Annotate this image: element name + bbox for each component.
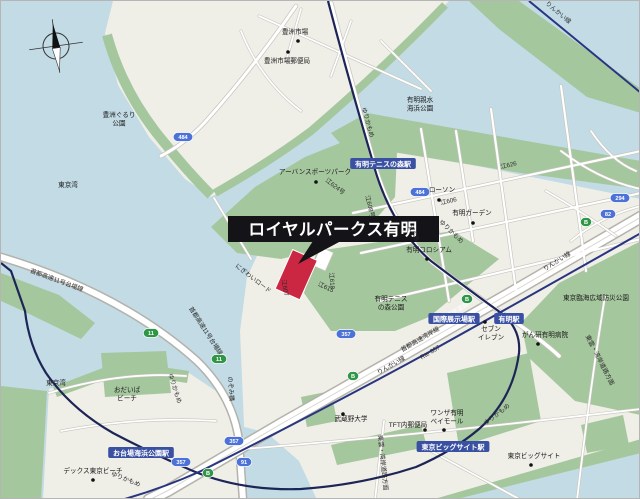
poi-label: TFT内郵便局 (389, 420, 428, 429)
poi-label: がん研有明病院 (522, 330, 569, 339)
poi-dot (425, 257, 429, 261)
poi-dot (483, 320, 487, 324)
route-badge-text: 91 (241, 460, 247, 466)
route-badge-text: 484 (178, 135, 188, 141)
poi-label: ローソン (429, 187, 456, 194)
poi-label: 有明コロシアム (406, 245, 452, 254)
poi-label: セブンイレブン (478, 324, 505, 342)
route-badge-text: 11 (148, 331, 154, 337)
poi-dot (341, 412, 345, 416)
poi-label: 東京湾 (58, 180, 78, 189)
ariake-access-map: ロイヤルパークス有明 ゆりかもめゆりかもめゆりかもめゆりかもめゆりかもめ首都高速… (0, 0, 640, 499)
route-badge-text: 11 (216, 357, 222, 363)
station-label: 東京ビッグサイト駅 (422, 443, 486, 452)
station-label: 国際展示場駅 (433, 315, 476, 324)
poi-label: おだいばビーチ (114, 385, 141, 403)
route-badge-text: 82 (605, 212, 611, 218)
poi-label: アーバンスポーツパーク (279, 168, 351, 176)
poi-dot (442, 428, 446, 432)
poi-label: 武蔵野大学 (335, 414, 368, 423)
poi-dot (529, 463, 533, 467)
route-badge-text: 484 (415, 190, 425, 196)
road-label: 江618 (327, 272, 335, 290)
poi-label: 東京湾 (46, 378, 66, 387)
poi-label: 有明ガーデン (452, 208, 492, 217)
poi-dot (536, 342, 540, 346)
poi-dot (314, 180, 318, 184)
poi-dot (286, 50, 290, 54)
poi-label: 有明親水海浜公園 (407, 95, 434, 113)
route-badge-text: B (351, 374, 355, 380)
route-badge-text: B (206, 471, 210, 477)
poi-label: 豊洲市場 (282, 27, 309, 36)
poi-label: 有明テニスの森公園 (375, 294, 408, 312)
poi-label: デックス東京ビーチ (63, 466, 123, 475)
route-badge-text: 294 (615, 196, 625, 202)
route-badge-text: 357 (229, 439, 238, 445)
station-label: お台場海浜公園駅 (113, 449, 170, 458)
route-badge-text: 357 (341, 332, 350, 338)
poi-label: 東京ビッグサイト (508, 451, 561, 460)
route-badge-text: B (584, 220, 588, 226)
poi-dot (471, 221, 475, 225)
route-badge-text: B (465, 297, 469, 303)
poi-label: 豊洲市場郵便局 (264, 56, 311, 65)
station-label: 有明駅 (499, 315, 521, 324)
poi-label: 東京臨海広域防災公園 (563, 293, 629, 302)
poi-dot (437, 198, 441, 202)
poi-dot (296, 39, 300, 43)
poi-dot (423, 428, 427, 432)
callout-text: ロイヤルパークス有明 (248, 219, 417, 239)
poi-label: ワンザ有明ベイモール (431, 408, 464, 426)
route-badge-text: 357 (176, 460, 185, 466)
station-label: 有明テニスの森駅 (355, 160, 412, 169)
poi-dot (91, 478, 95, 482)
